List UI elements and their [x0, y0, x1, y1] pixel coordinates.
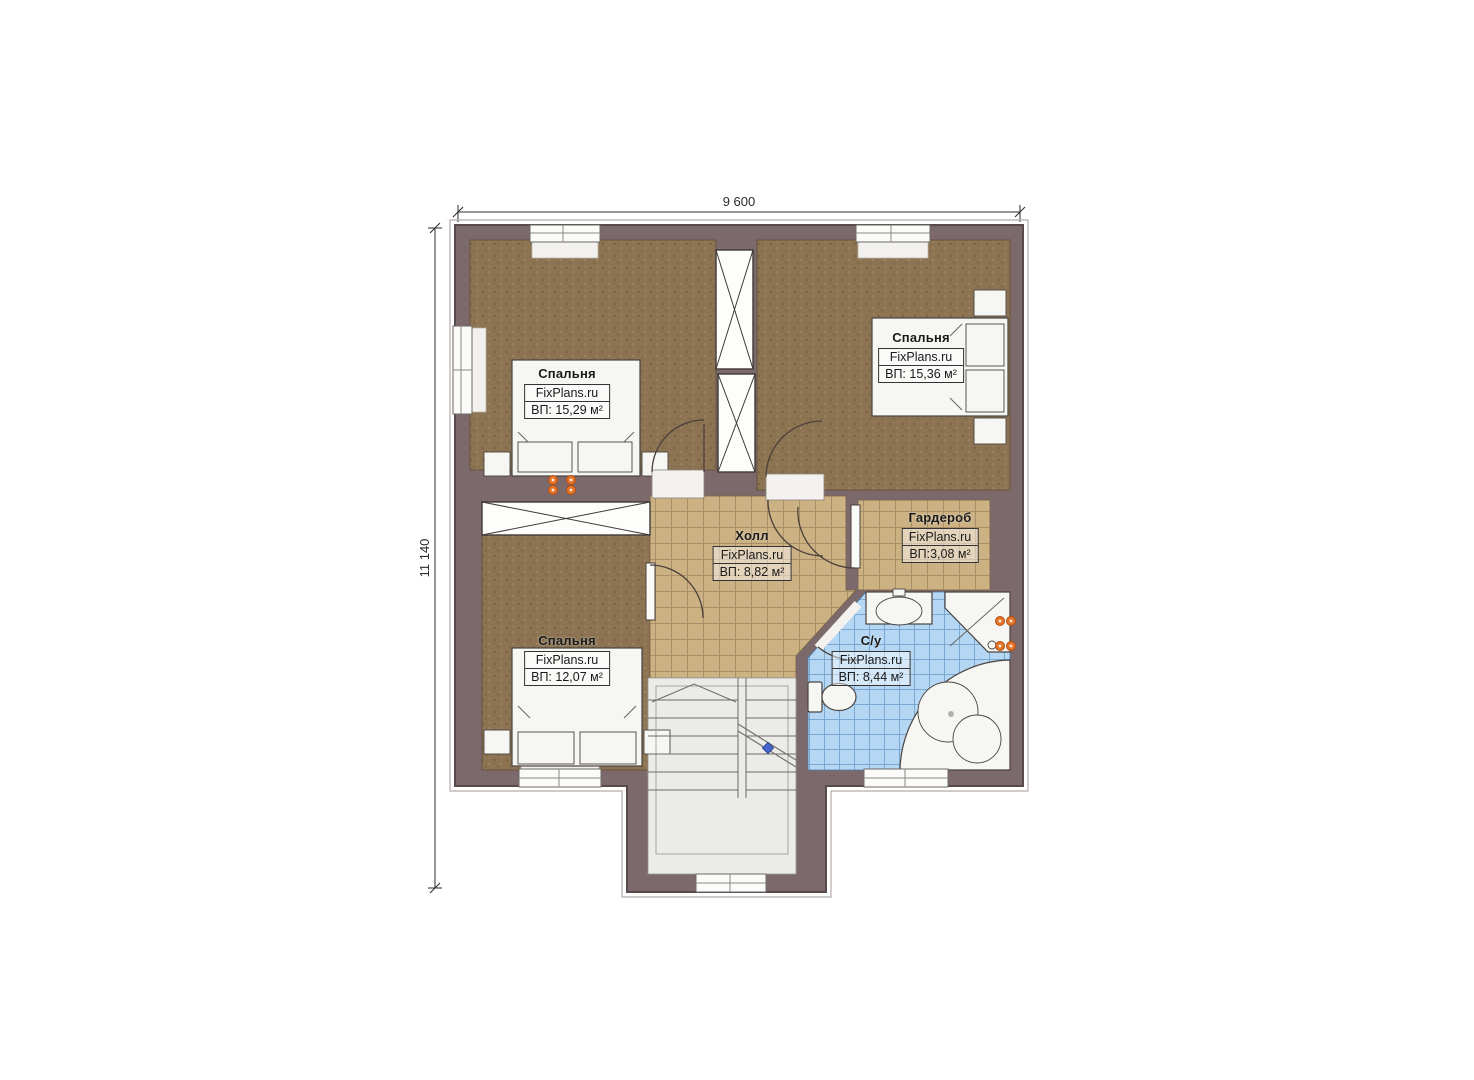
window-top-left	[530, 225, 600, 242]
dimension-left: 11 140	[417, 223, 442, 893]
room-area: ВП: 12,07 м²	[525, 668, 609, 685]
dimension-width-label: 9 600	[723, 194, 756, 209]
brand-watermark: FixPlans.ru	[903, 529, 978, 545]
room-area: ВП: 15,36 м²	[879, 365, 963, 382]
window-bottom-bathroom	[864, 769, 948, 787]
room-area: ВП: 8,82 м²	[714, 563, 791, 580]
window-left	[453, 326, 472, 414]
brand-watermark: FixPlans.ru	[525, 385, 609, 401]
built-in-closet	[482, 502, 650, 535]
room-title: Холл	[735, 528, 768, 543]
room-title: Спальня	[538, 366, 596, 381]
room-info-box: FixPlans.ru ВП: 8,44 м²	[832, 651, 911, 686]
sink	[866, 589, 932, 625]
room-info-box: FixPlans.ru ВП: 8,82 м²	[713, 546, 792, 581]
room-info-box: FixPlans.ru ВП: 12,07 м²	[524, 651, 610, 686]
label-bedroom-top-right: Спальня FixPlans.ru ВП: 15,36 м²	[878, 330, 964, 383]
label-bathroom: С/у FixPlans.ru ВП: 8,44 м²	[832, 633, 911, 686]
floor-plan-page: 9 600 11 140	[0, 0, 1474, 1080]
room-title: Гардероб	[908, 510, 971, 525]
room-info-box: FixPlans.ru ВП: 15,36 м²	[878, 348, 964, 383]
room-info-box: FixPlans.ru ВП:3,08 м²	[902, 528, 979, 563]
stairwell-floor	[648, 678, 796, 874]
dimension-top: 9 600	[453, 194, 1025, 222]
window-sill	[858, 242, 928, 258]
brand-watermark: FixPlans.ru	[525, 652, 609, 668]
label-bedroom-bottom-left: Спальня FixPlans.ru ВП: 12,07 м²	[524, 633, 610, 686]
window-bottom-bedroom	[519, 769, 601, 787]
room-title: Спальня	[892, 330, 950, 345]
room-title: С/у	[861, 633, 882, 648]
room-area: ВП: 15,29 м²	[525, 401, 609, 418]
room-area: ВП: 8,44 м²	[833, 668, 910, 685]
brand-watermark: FixPlans.ru	[833, 652, 910, 668]
ventilation-shaft	[716, 250, 755, 472]
toilet	[808, 682, 856, 712]
room-area: ВП:3,08 м²	[903, 545, 978, 562]
brand-watermark: FixPlans.ru	[879, 349, 963, 365]
label-bedroom-top-left: Спальня FixPlans.ru ВП: 15,29 м²	[524, 366, 610, 419]
window-sill	[532, 242, 598, 258]
room-title: Спальня	[538, 633, 596, 648]
dimension-height-label: 11 140	[417, 539, 432, 578]
label-hall: Холл FixPlans.ru ВП: 8,82 м²	[713, 528, 792, 581]
label-wardrobe: Гардероб FixPlans.ru ВП:3,08 м²	[902, 510, 979, 563]
window-stairwell	[696, 874, 766, 892]
window-top-right	[856, 225, 930, 242]
brand-watermark: FixPlans.ru	[714, 547, 791, 563]
room-info-box: FixPlans.ru ВП: 15,29 м²	[524, 384, 610, 419]
